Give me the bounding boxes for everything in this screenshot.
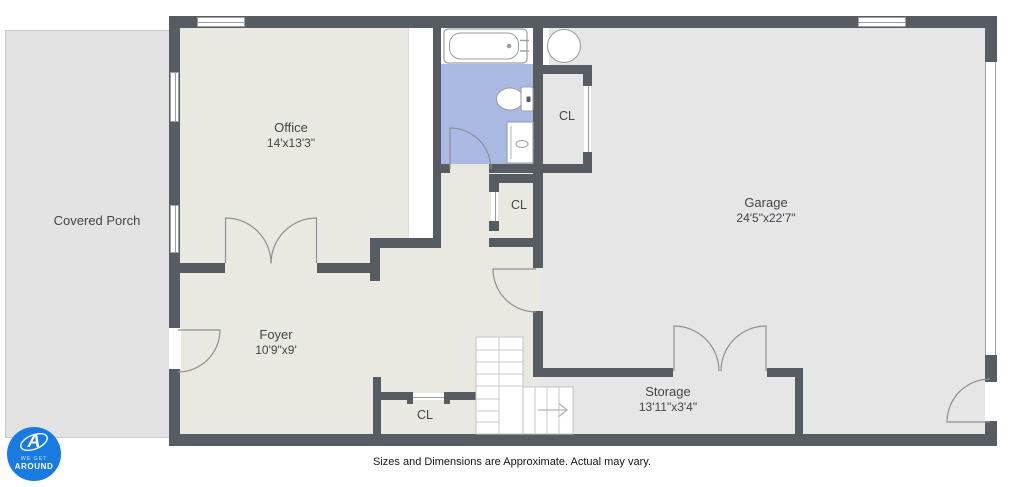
door-swing [450, 128, 491, 169]
room-label-foyer: Foyer 10'9"x9' [206, 327, 346, 358]
door-swing [493, 269, 536, 312]
door-swing [721, 326, 766, 371]
door-swing [947, 379, 990, 422]
room-name: Office [221, 120, 361, 136]
staircase [476, 337, 573, 434]
toilet-symbol [497, 87, 534, 111]
room-label-storage: Storage 13'11"x3'4" [598, 384, 738, 415]
room-label-closet-foyer: CL [407, 408, 443, 422]
room-label-covered-porch: Covered Porch [52, 212, 142, 229]
plan-symbols-layer [0, 0, 1024, 487]
room-dims: 10'9"x9' [206, 343, 346, 358]
room-label-garage: Garage 24'5"x22'7" [696, 195, 836, 226]
room-label-office: Office 14'x13'3" [221, 120, 361, 151]
door-swing [226, 218, 272, 264]
door-swing [674, 326, 719, 371]
room-name: Foyer [206, 327, 346, 343]
room-dims: 13'11"x3'4" [598, 400, 738, 415]
logo-text-bottom: AROUND [7, 462, 61, 471]
bathtub-symbol [444, 29, 529, 63]
floor-plan: Covered Porch Office 14'x13'3" Garage 24… [0, 0, 1024, 487]
logo-orbit-icon [7, 427, 61, 455]
room-label-closet-bath: CL [549, 109, 585, 123]
door-swing [271, 218, 317, 264]
disclaimer-text: Sizes and Dimensions are Approximate. Ac… [0, 456, 1024, 468]
room-label-closet-hall: CL [501, 198, 537, 212]
room-dims: 14'x13'3" [221, 136, 361, 151]
room-name: Garage [696, 195, 836, 211]
we-get-around-logo: A WE GET AROUND [7, 427, 61, 481]
water-heater-symbol [548, 30, 581, 63]
sink-vanity-symbol [507, 122, 533, 163]
room-dims: 24'5"x22'7" [696, 211, 836, 226]
room-name: Storage [598, 384, 738, 400]
